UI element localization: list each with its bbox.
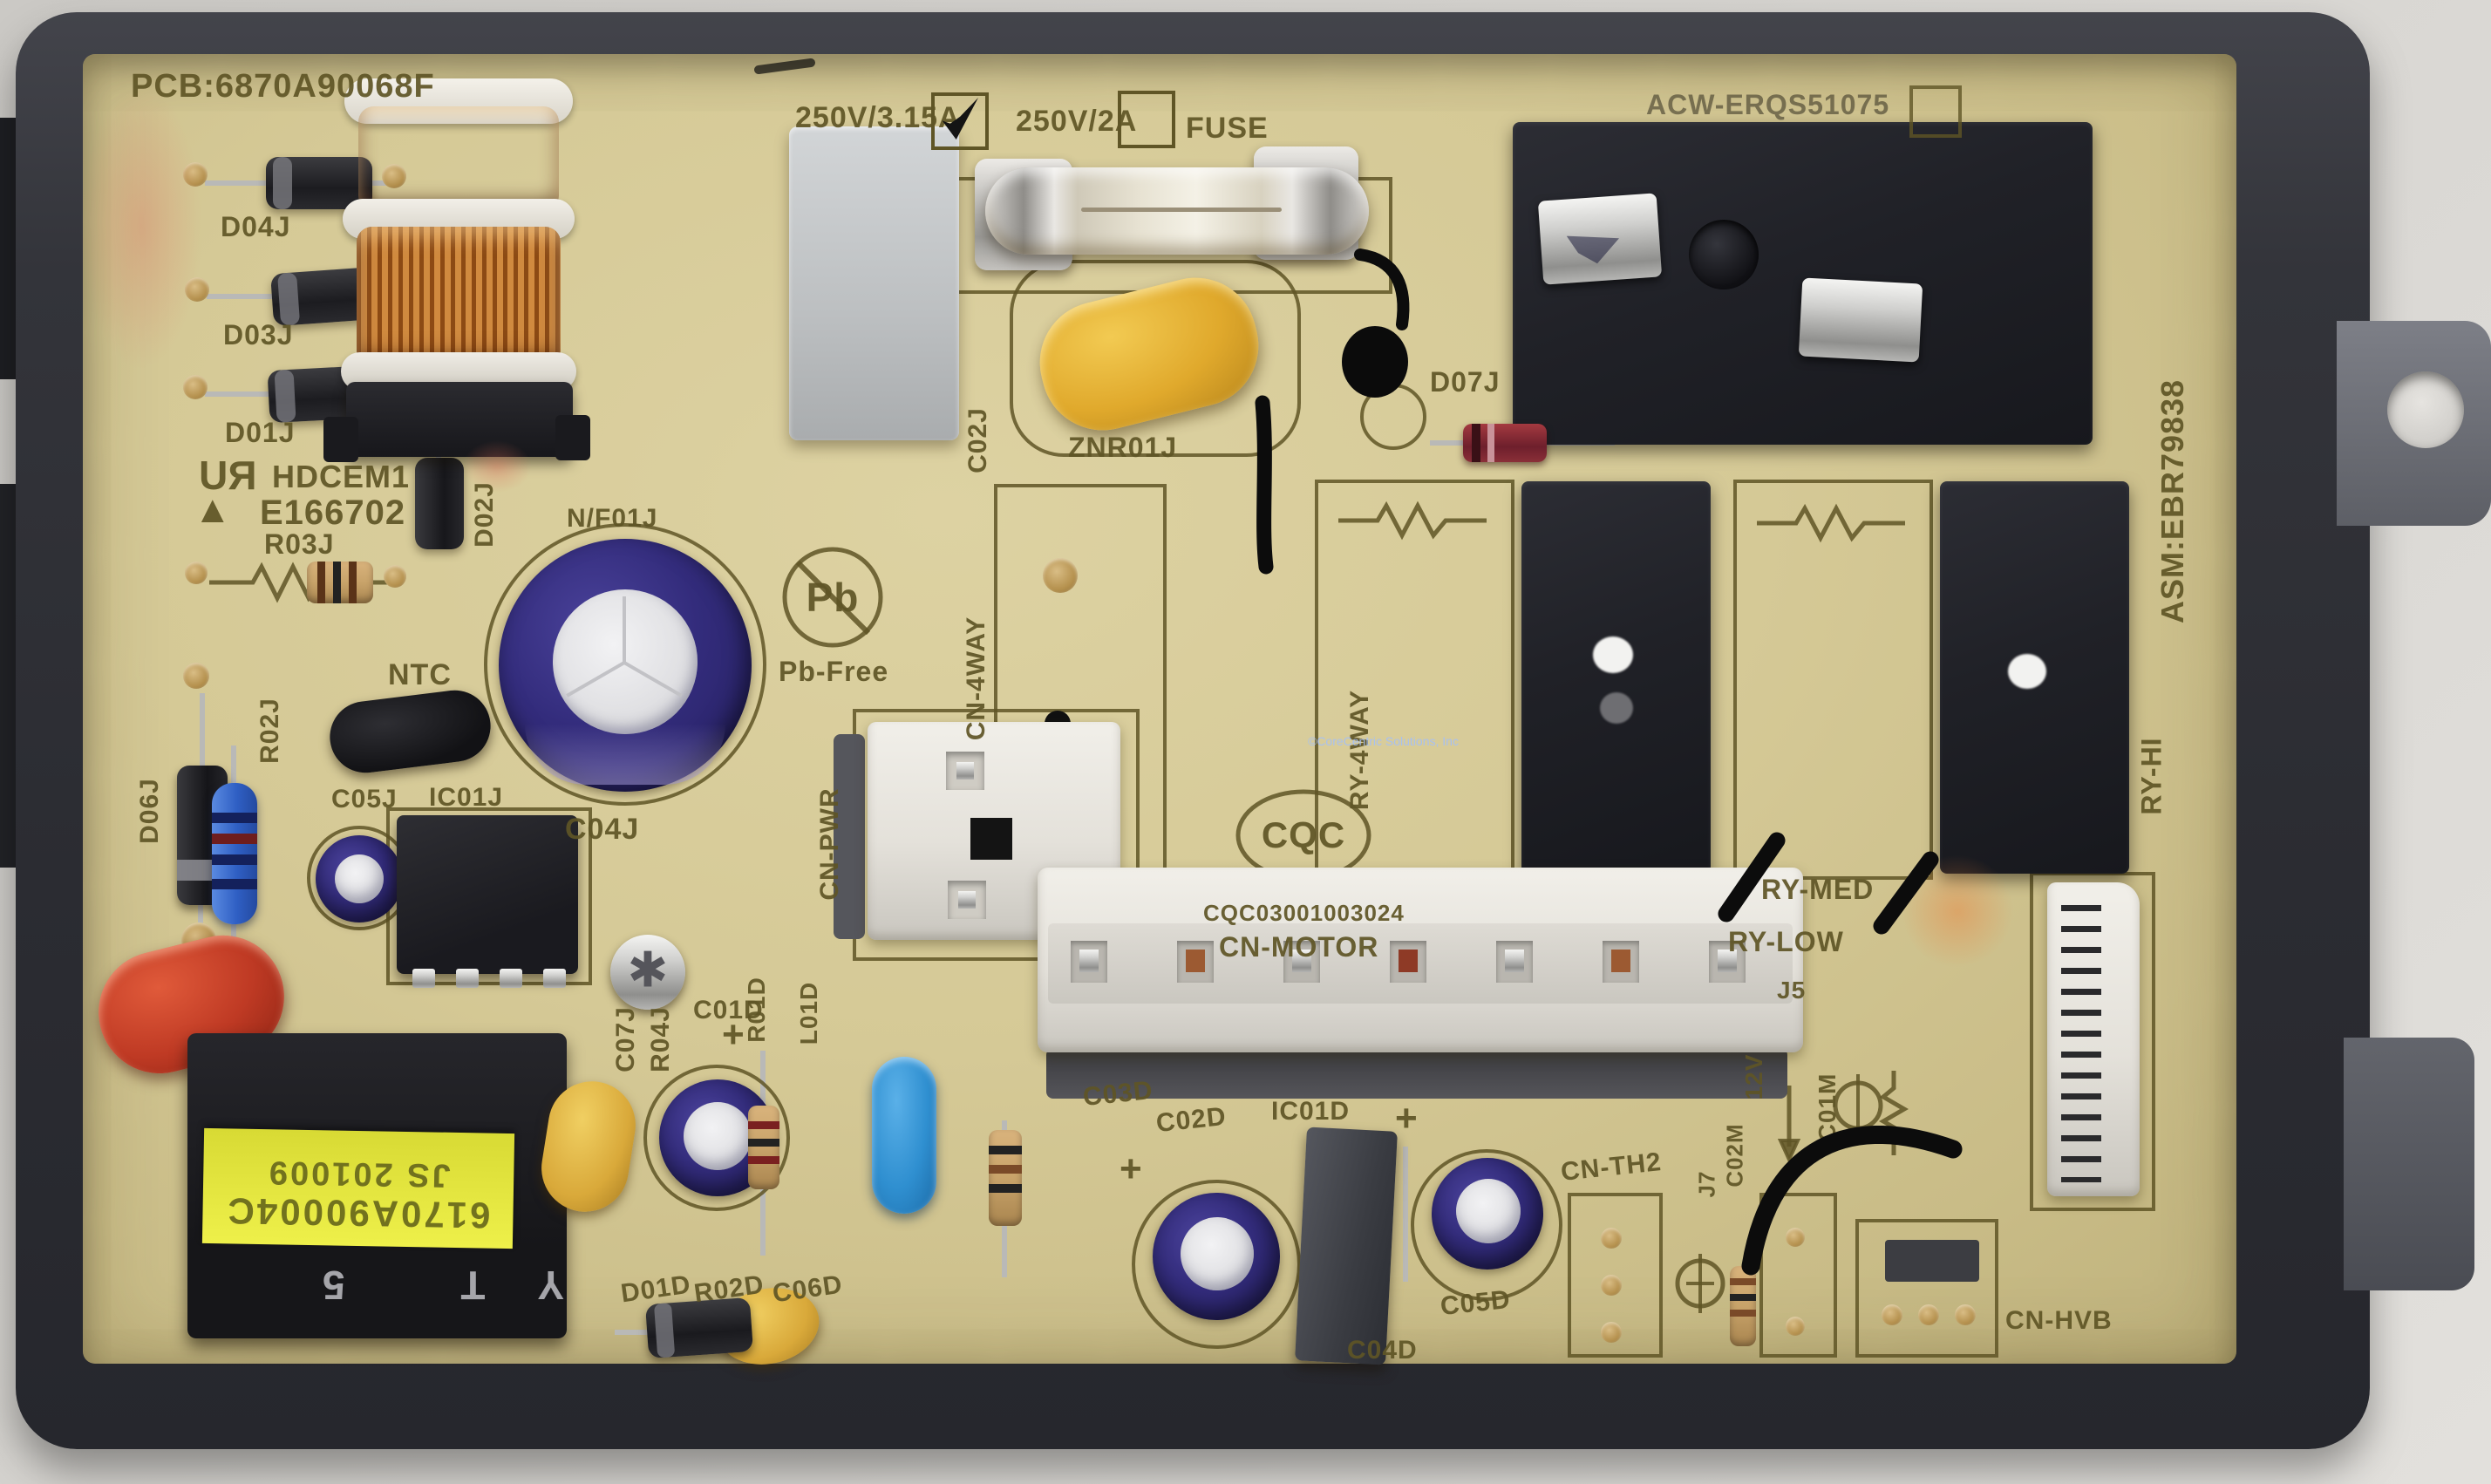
marker-strokes: [0, 0, 2491, 1484]
pcb-photo: PCB:6870A90068F 250V/3.15A 250V/2A FUSE …: [0, 0, 2491, 1484]
photo-watermark: ©CoreCentric Solutions, Inc: [1308, 734, 1459, 748]
